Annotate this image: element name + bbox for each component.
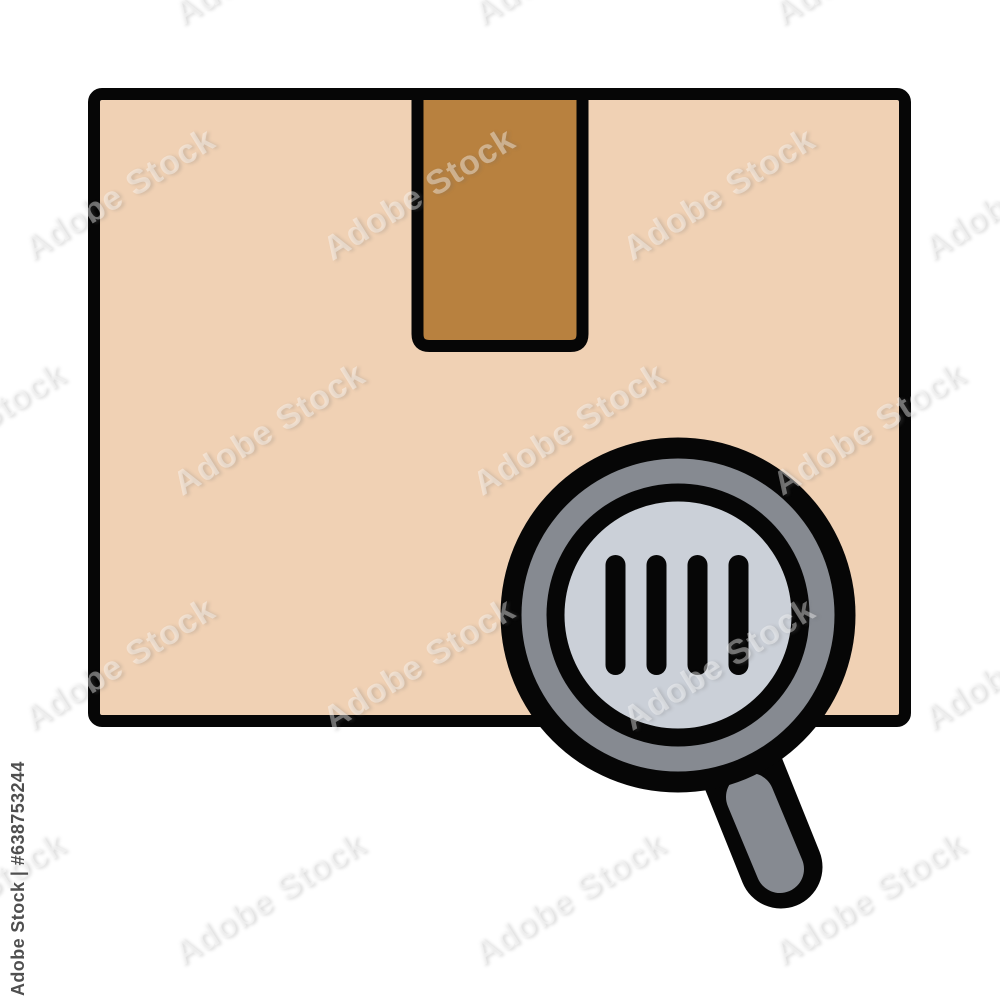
magnifier-handle (750, 797, 780, 869)
stock-image-canvas: Adobe StockAdobe StockAdobe StockAdobe S… (0, 0, 1000, 1000)
barcode-bar-3 (688, 555, 708, 675)
magnifier (501, 438, 856, 870)
magnifier-lens (565, 502, 792, 729)
parcel-barcode-search-icon (0, 0, 1000, 1000)
barcode-bar-1 (606, 555, 626, 675)
parcel-tape (418, 94, 583, 346)
watermark-credit: Adobe Stock | #638753244 (8, 752, 29, 996)
barcode-bar-2 (647, 555, 667, 675)
barcode-bar-4 (729, 555, 749, 675)
